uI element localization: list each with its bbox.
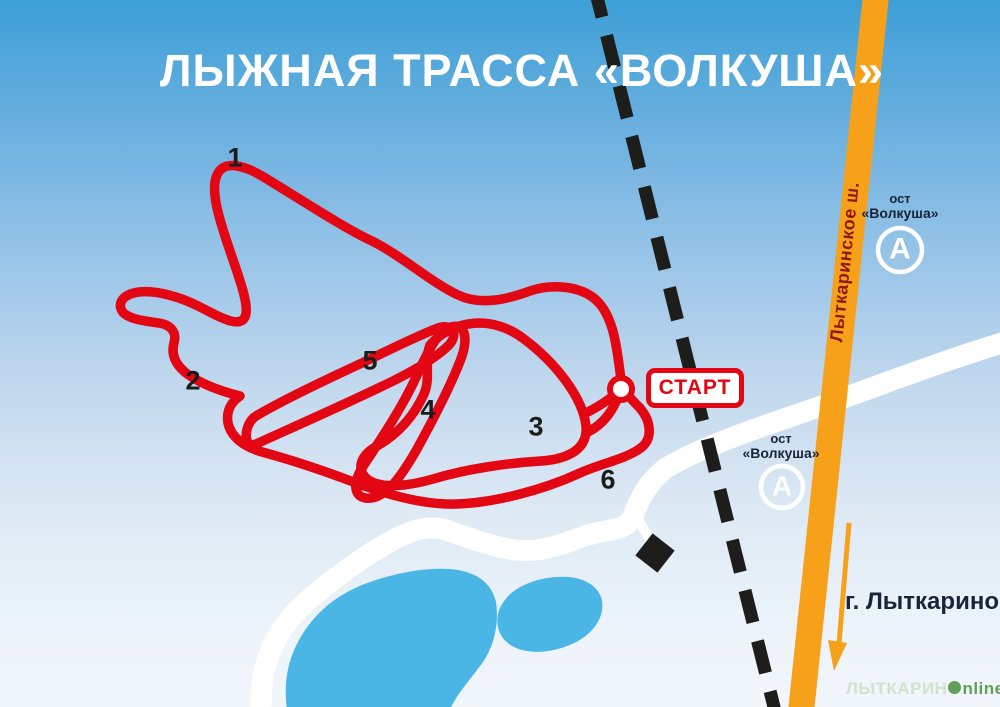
watermark-left: ЛЫТКАРИН bbox=[846, 679, 947, 698]
bus-stop-2-line2: «Волкуша» bbox=[742, 446, 819, 461]
building-marker bbox=[635, 533, 674, 572]
bus-stop-2-label: ост «Волкуша» bbox=[742, 431, 819, 461]
watermark-o-dot-icon bbox=[948, 681, 961, 694]
bus-stop-1-line2: «Волкуша» bbox=[861, 206, 938, 221]
city-direction-label: г. Лыткарино bbox=[845, 588, 999, 616]
lake-small bbox=[497, 577, 602, 652]
watermark: ЛЫТКАРИНnline bbox=[846, 679, 1000, 699]
city-arrow-head bbox=[828, 640, 847, 671]
bus-stop-2-line1: ост bbox=[742, 431, 819, 446]
bus-stop-2-symbol: А bbox=[772, 470, 792, 502]
checkpoint-label-2: 2 bbox=[185, 366, 200, 397]
checkpoint-label-1: 1 bbox=[227, 143, 242, 174]
checkpoint-label-3: 3 bbox=[528, 412, 543, 443]
checkpoint-label-4: 4 bbox=[420, 395, 435, 426]
checkpoint-label-5: 5 bbox=[362, 346, 377, 377]
bus-stop-1-label: ост «Волкуша» bbox=[861, 191, 938, 221]
checkpoint-label-6: 6 bbox=[600, 465, 615, 496]
start-badge: СТАРТ bbox=[646, 368, 744, 408]
bus-stop-1-line1: ост bbox=[861, 191, 938, 206]
bus-stop-1-symbol: А bbox=[889, 232, 911, 266]
ski-trail-map: ЛЫЖНАЯ ТРАССА «ВОЛКУША» 1 2 3 4 5 6 СТАР… bbox=[0, 0, 1000, 707]
watermark-right: nline bbox=[962, 679, 1000, 698]
start-point-marker bbox=[610, 378, 632, 400]
city-arrow-shaft bbox=[839, 523, 849, 644]
map-title: ЛЫЖНАЯ ТРАССА «ВОЛКУША» bbox=[160, 45, 884, 97]
